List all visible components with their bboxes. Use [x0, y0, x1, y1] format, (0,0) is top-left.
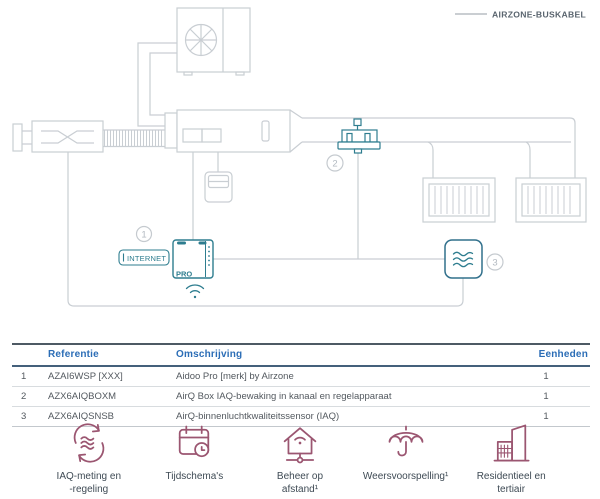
weather-forecast-icon [383, 421, 429, 465]
feature-label: Tijdschema's [166, 470, 224, 483]
air-outlet [13, 121, 103, 152]
outdoor-unit [177, 8, 250, 75]
schedule-icon [171, 421, 217, 465]
col-header-referentie: Referentie [46, 344, 174, 366]
callout-2: 2 [327, 155, 343, 171]
col-header-omschrijving: Omschrijving [174, 344, 502, 366]
svg-text:2: 2 [332, 158, 337, 169]
wifi-icon [187, 285, 204, 298]
svg-text:INTERNET: INTERNET [127, 254, 166, 263]
row-units: 1 [502, 387, 590, 407]
internet-label: INTERNET [119, 250, 169, 265]
row-units: 1 [502, 366, 590, 387]
page: AIRZONE-BUSKABEL [0, 0, 600, 499]
feature-remote: Beheer op afstand¹ [247, 421, 353, 496]
row-index: 1 [12, 366, 46, 387]
table-row: 2 AZX6AIQBOXM AirQ Box IAQ-bewaking in k… [12, 387, 590, 407]
system-diagram: AIRZONE-BUSKABEL [0, 0, 600, 336]
parts-table: Referentie Omschrijving Eenheden 1 AZAI6… [12, 343, 590, 427]
feature-list: IAQ-meting en -regeling Beheer op afstan… [36, 421, 564, 496]
indoor-unit [165, 110, 302, 152]
bus-cables [68, 152, 463, 306]
callout-1: 1 [137, 227, 152, 242]
feature-weather: Weersvoorspelling¹ [353, 421, 459, 496]
svg-text:1: 1 [141, 229, 146, 240]
feature-label: Residentieel en tertiair [477, 470, 546, 496]
pro-label: PRO [176, 270, 192, 279]
remote-management-icon [277, 421, 323, 465]
wall-thermostat [205, 152, 232, 202]
feature-label: Weersvoorspelling¹ [363, 470, 448, 483]
feature-label: IAQ-meting en -regeling [57, 470, 121, 496]
airq-sensor-device [445, 240, 482, 278]
table-row: 1 AZAI6WSP [XXX] Aidoo Pro [merk] by Air… [12, 366, 590, 387]
feature-residential: Residentieel en tertiair [458, 421, 564, 496]
row-index: 2 [12, 387, 46, 407]
callout-3: 3 [487, 254, 503, 270]
col-header-index [12, 344, 46, 366]
supply-grille-2 [516, 178, 586, 222]
table-header-row: Referentie Omschrijving Eenheden [12, 344, 590, 366]
feature-label: Beheer op afstand¹ [277, 470, 323, 496]
iaq-cycle-icon [66, 421, 112, 465]
aidoo-pro-device: PRO [173, 240, 213, 298]
flexible-duct [103, 130, 165, 147]
row-reference: AZX6AIQBOXM [46, 387, 174, 407]
building-icon [488, 421, 534, 465]
feature-iaq: IAQ-meting en -regeling [36, 421, 142, 496]
row-description: AirQ Box IAQ-bewaking in kanaal en regel… [174, 387, 502, 407]
svg-text:3: 3 [492, 257, 497, 268]
airq-box-device [338, 119, 380, 153]
feature-schedules: Beheer op afstand¹ Tijdschema's [142, 421, 248, 496]
legend: AIRZONE-BUSKABEL [455, 10, 586, 20]
legend-label: AIRZONE-BUSKABEL [492, 10, 586, 20]
row-description: Aidoo Pro [merk] by Airzone [174, 366, 502, 387]
supply-grille-1 [423, 178, 495, 222]
row-reference: AZAI6WSP [XXX] [46, 366, 174, 387]
col-header-eenheden: Eenheden [502, 344, 590, 366]
